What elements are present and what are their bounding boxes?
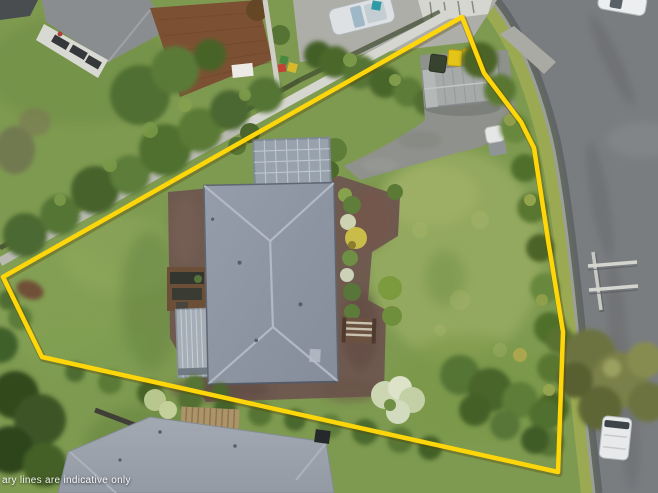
sunroom-glass-roof — [176, 308, 210, 377]
teal-bin — [371, 0, 381, 10]
main-house-roof — [204, 183, 338, 385]
aerial-photo-scene — [0, 0, 658, 493]
rear-deck — [167, 267, 207, 311]
picnic-table — [342, 317, 377, 343]
parked-van — [599, 416, 632, 461]
aerial-photo: ary lines are indicative only — [0, 0, 658, 493]
deck-table — [231, 63, 253, 78]
chimney — [314, 429, 331, 444]
roof-skylight — [309, 349, 321, 363]
conservatory-glass-roof — [253, 138, 331, 186]
